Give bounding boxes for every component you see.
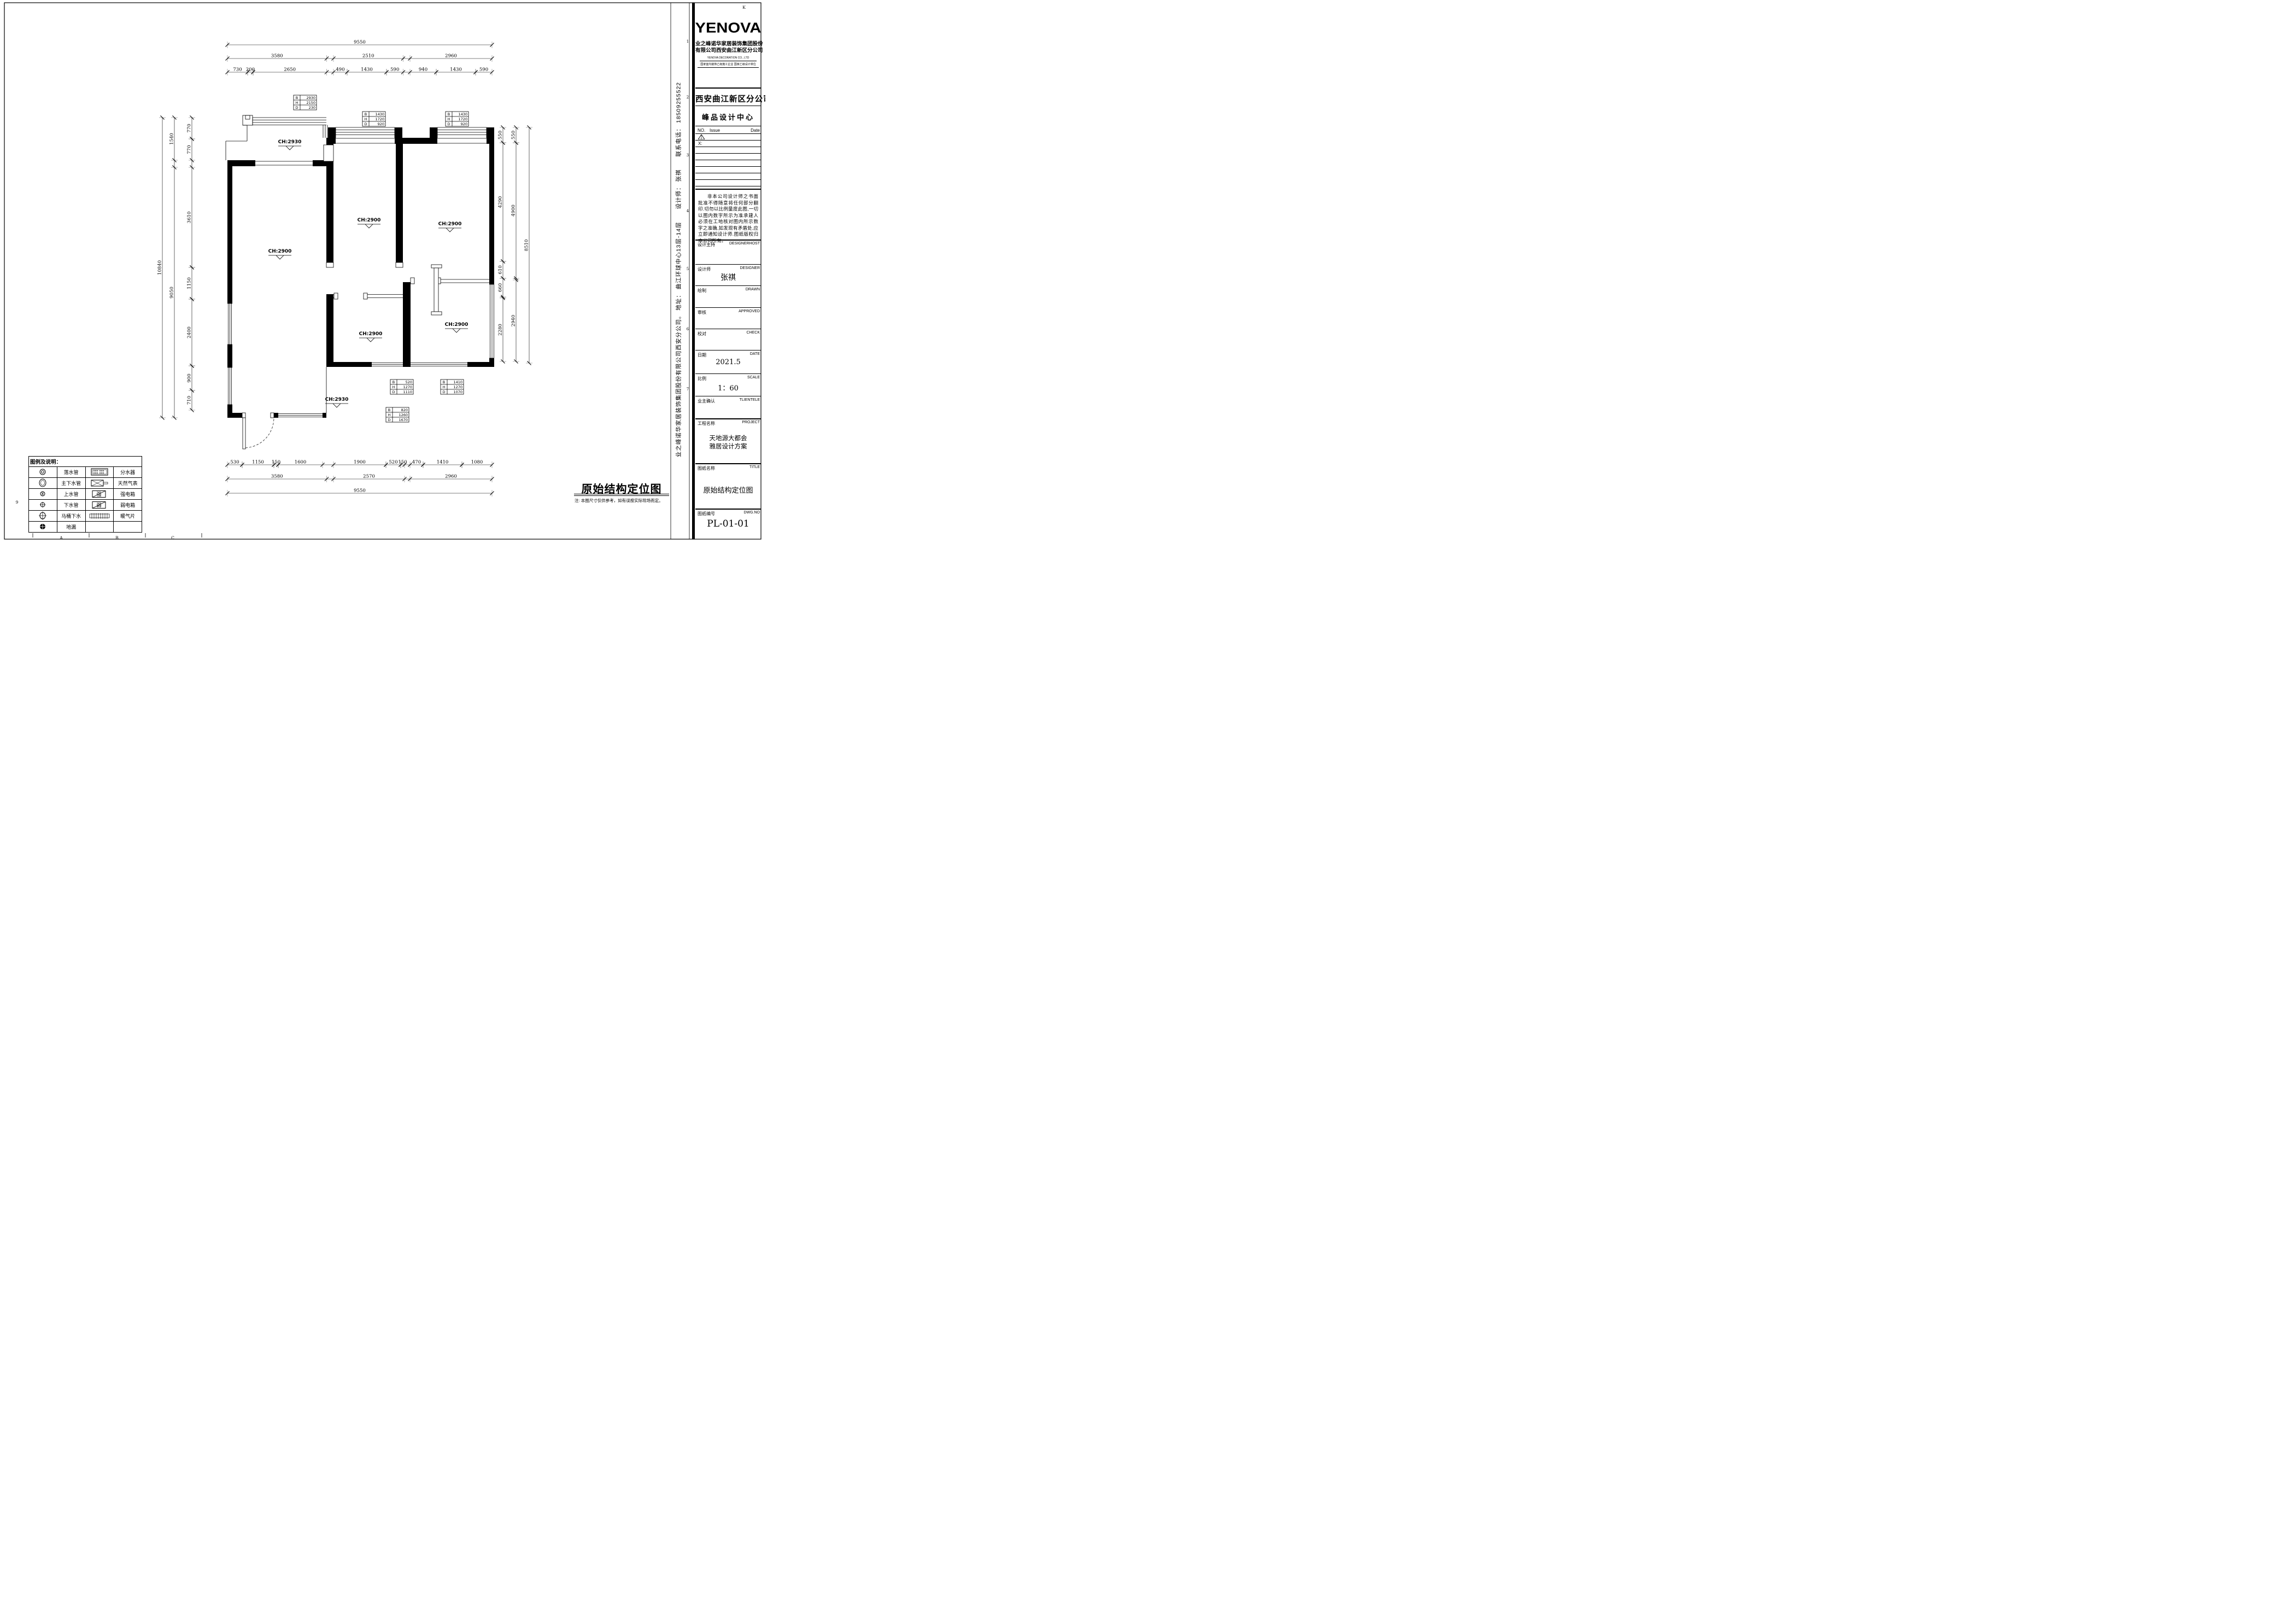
lower-balcony-window	[278, 414, 323, 417]
dimension-label: 610	[498, 265, 503, 274]
drawing-note: 注: 本图尺寸仅供参考，如有误按实际现场而定。	[575, 498, 672, 504]
row-label-cn: 绘制	[698, 288, 706, 294]
door-jamb	[271, 413, 274, 418]
dimension-chain: 358025102960	[226, 54, 494, 62]
svg-text:CH:2930: CH:2930	[325, 397, 349, 402]
gas-meter-icon	[90, 478, 109, 487]
ceiling-height-label: CH:2900	[358, 218, 381, 228]
dimension-label: 520	[389, 460, 397, 465]
title-block: YENOVA 业之峰诺华家居装饰集团股份 有限公司西安曲江新区分公司 YENOV…	[695, 5, 761, 535]
legend-label: 下水管	[57, 500, 85, 511]
svg-text:B: B	[393, 380, 395, 384]
column-outline	[324, 145, 333, 161]
svg-text:强: 强	[96, 492, 101, 497]
floor-drain-icon	[37, 523, 49, 530]
svg-text:B: B	[448, 112, 450, 116]
dimension-label: 2280	[498, 324, 503, 336]
dimension-label: 1080	[471, 460, 483, 465]
balcony-top-window	[253, 118, 327, 138]
dimension-label: 150	[398, 460, 407, 465]
company-name-en: YENOVA DECORATION CO., LTD	[695, 56, 761, 60]
door-leaf	[243, 418, 245, 449]
row-label-cn: 日期	[698, 352, 706, 358]
svg-text:D: D	[364, 122, 367, 126]
designer-name: 张祺	[695, 272, 761, 283]
weak-power-box-icon: 弱	[90, 500, 109, 509]
dimension-label: 1900	[354, 460, 366, 465]
opening-size-table: B1430H1720D920	[446, 112, 468, 126]
dimension-label: 590	[390, 67, 399, 73]
ceiling-height-label: CH:2900	[438, 221, 462, 232]
dimension-label: 1410	[437, 460, 449, 465]
dimension-label: 530	[230, 460, 239, 465]
branch-name: 西安曲江新区分公司	[695, 93, 761, 104]
dimension-chain: 53011501501600190052015047014101080	[226, 460, 494, 469]
dimension-label: 770	[187, 124, 192, 132]
legend-label: 暖气片	[114, 511, 142, 522]
row-label-en: DESIGNERHOST	[729, 242, 760, 246]
dimension-chain: 358025702960	[226, 474, 494, 483]
svg-text:1110: 1110	[403, 390, 412, 394]
dimension-chain: 15409050	[169, 116, 178, 420]
row-label-cn: 图纸名称	[698, 465, 715, 471]
door-jamb	[396, 262, 403, 267]
downpipe-icon	[37, 468, 49, 476]
corner-column	[243, 115, 253, 125]
dimension-label: 2650	[284, 67, 296, 73]
svg-text:H: H	[388, 413, 391, 417]
dimension-label: 1150	[187, 277, 192, 289]
main-drain-icon	[37, 478, 49, 487]
sheet-grid-label: A	[59, 535, 63, 540]
row-label-en: TLIENTELE	[740, 398, 760, 402]
company-name-line2: 有限公司西安曲江新区分公司	[695, 46, 761, 54]
dimension-label: 1430	[450, 67, 462, 73]
walls	[227, 127, 494, 418]
design-center: 峰品设计中心	[695, 112, 761, 122]
legend-label: 天然气表	[114, 478, 142, 489]
title-underline	[574, 495, 669, 496]
sheet-grid-label: B	[115, 535, 119, 540]
legend-label: 主下水管	[57, 478, 85, 489]
svg-text:1430: 1430	[458, 112, 467, 116]
toilet-drain-icon	[37, 511, 49, 520]
title-underline	[574, 494, 669, 494]
row-label-cn: 工程名称	[698, 420, 715, 427]
svg-text:弱: 弱	[96, 503, 101, 508]
balcony-door-sill	[255, 161, 313, 165]
legend: 图例及说明： 落水管 分水器 主下水管 天然气表 上水管 强 强电箱	[28, 456, 142, 533]
dimension-label: 550	[511, 131, 517, 139]
dimension-chain: 8510	[524, 126, 533, 365]
svg-text:B: B	[388, 408, 390, 412]
svg-text:D: D	[392, 390, 395, 394]
row-label-en: DESIGNER	[740, 266, 760, 270]
row-label-en: DRAWN	[746, 288, 760, 291]
row-label-en: TITLE	[749, 465, 760, 469]
svg-text:520: 520	[406, 380, 412, 384]
svg-text:H: H	[365, 117, 367, 121]
door-jamb	[326, 262, 333, 267]
grid-number: 3	[685, 153, 690, 157]
row-label-en: CHECK	[746, 331, 760, 335]
ceiling-height-label: CH:2930	[278, 139, 302, 150]
rev-date-header: Date	[751, 128, 760, 133]
svg-text:B: B	[296, 96, 298, 100]
dimension-label: 660	[498, 283, 503, 292]
grid-number: 4	[685, 209, 690, 213]
grid-number: 1	[685, 39, 690, 44]
dimension-label: 710	[187, 396, 192, 405]
svg-text:D: D	[442, 390, 445, 394]
opening-size-table: B2930H2150D230	[294, 95, 317, 110]
dimension-label: 9050	[169, 287, 175, 299]
legend-label: 马桶下水	[57, 511, 85, 522]
svg-text:1720: 1720	[458, 117, 467, 121]
opening-size-table: B520H1270D1110	[390, 379, 413, 394]
row-label-cn: 图纸编号	[698, 511, 715, 517]
dimension-label: 1430	[361, 67, 373, 73]
svg-text:2150: 2150	[306, 101, 315, 105]
svg-text:820: 820	[401, 408, 408, 412]
drain-pipe-icon	[37, 501, 49, 509]
grid-number: 5	[685, 267, 690, 271]
dimension-chain: 730200265049014305909401430590	[226, 67, 494, 76]
windows	[227, 118, 494, 417]
dimension-label: 2510	[362, 54, 374, 59]
supply-pipe-icon	[37, 490, 49, 498]
svg-text:D: D	[388, 418, 390, 422]
svg-text:H: H	[448, 117, 450, 121]
dimension-label: 2960	[445, 54, 457, 59]
door-jamb	[242, 413, 245, 418]
ceiling-height-label: CH:2930	[325, 397, 349, 407]
dimension-label: 1540	[169, 133, 175, 145]
dimension-label: 2960	[445, 474, 457, 480]
svg-text:920: 920	[378, 122, 384, 126]
dimension-label: 4900	[511, 205, 517, 217]
svg-text:H: H	[296, 101, 298, 105]
drawing-sheet: 9550358025102960730200265049014305909401…	[0, 0, 765, 541]
dimension-chain: 55049002940	[511, 126, 520, 364]
dimension-label: 900	[187, 373, 192, 382]
svg-text:1670: 1670	[399, 418, 408, 422]
dimension-label: 8510	[524, 239, 530, 252]
bay-window-1	[336, 127, 395, 143]
legend-label: 弱电箱	[114, 500, 142, 511]
svg-text:1270: 1270	[453, 385, 462, 389]
opening-size-table: B1410H1270D1070	[441, 379, 464, 394]
opening-size-table: B820H1260D1670	[386, 407, 409, 422]
bay-window-2	[437, 127, 487, 143]
row-label-en: PROJECT	[742, 420, 760, 424]
legend-label: 落水管	[57, 467, 85, 478]
dimension-chain: 770770361011502400900710	[187, 116, 196, 412]
row-label-en: APPROVED	[739, 309, 760, 313]
ceiling-height-label: CH:2900	[445, 322, 468, 332]
left-wall-window-1	[227, 303, 232, 344]
t-partition	[431, 265, 442, 315]
svg-text:CH:2900: CH:2900	[268, 249, 292, 254]
legend-label: 地漏	[57, 522, 85, 533]
sheet-title-value: 原始结构定位图	[695, 484, 761, 495]
dimension-chain: 9550	[226, 40, 494, 49]
grid-number: 7	[685, 387, 690, 392]
row-label-en: DWG.NO	[743, 511, 760, 515]
door-jamb	[364, 293, 367, 299]
dimension-label: 9550	[354, 40, 366, 45]
revision-triangle-icon	[698, 135, 705, 139]
radiator-icon	[89, 512, 110, 519]
project-name-line1: 天地源大都会	[695, 434, 761, 442]
svg-text:1410: 1410	[453, 380, 462, 384]
door-jamb	[334, 293, 338, 299]
svg-text:B: B	[365, 112, 367, 116]
dimension-label: 1150	[252, 460, 264, 465]
dimension-label: 550	[498, 131, 503, 139]
dimension-label: 940	[419, 67, 427, 73]
svg-text:230: 230	[309, 106, 315, 110]
legend-label: 分水器	[114, 467, 142, 478]
company-cert: 国家室内装饰乙级施工企业 国家乙级设计单位	[695, 62, 761, 66]
strong-power-box-icon: 强	[90, 489, 109, 498]
dimension-label: 2400	[187, 326, 192, 338]
svg-text:B: B	[443, 380, 445, 384]
row-label-cn: 比例	[698, 376, 706, 382]
svg-text:920: 920	[461, 122, 467, 126]
right-room-bottom-window	[411, 363, 467, 366]
opening-size-table: B1430H1720D920	[362, 112, 385, 126]
company-logo: YENOVA	[693, 20, 764, 36]
sheet-grid-label: 9	[16, 500, 19, 505]
row-label-en: SCALE	[747, 376, 760, 379]
svg-text:H: H	[393, 385, 395, 389]
svg-text:1720: 1720	[375, 117, 384, 121]
dimension-label: 3580	[271, 54, 283, 59]
date-value: 2021.5	[695, 358, 761, 366]
legend-label: 强电箱	[114, 489, 142, 500]
dimension-label: 3580	[271, 474, 283, 480]
dimension-label: 730	[233, 67, 242, 73]
dimension-label: 1600	[295, 460, 307, 465]
dimension-label: 4290	[498, 196, 503, 208]
dimension-label: 470	[412, 460, 421, 465]
row-label-cn: 设计主持	[698, 242, 715, 248]
svg-text:CH:2930: CH:2930	[278, 139, 302, 145]
ceiling-height-label: CH:2900	[359, 331, 383, 342]
svg-text:H: H	[443, 385, 446, 389]
dimension-label: 2940	[511, 315, 517, 327]
svg-text:1260: 1260	[399, 413, 408, 417]
grid-number: 6	[685, 327, 690, 331]
svg-text:1430: 1430	[375, 112, 384, 116]
door-jamb	[411, 278, 414, 284]
project-name-line2: 雅居设计方案	[695, 442, 761, 451]
middle-room-bottom-window	[372, 363, 403, 366]
row-label-cn: 业主确认	[698, 398, 715, 404]
grid-number: 2	[685, 95, 690, 100]
entry-door	[242, 413, 274, 449]
left-wall-window-2	[227, 367, 232, 405]
svg-text:1070: 1070	[453, 390, 462, 394]
svg-text:2930: 2930	[306, 96, 315, 100]
svg-text:1270: 1270	[403, 385, 412, 389]
drawing-number: PL-01-01	[695, 518, 761, 529]
dimension-label: 590	[479, 67, 488, 73]
row-label-cn: 校对	[698, 331, 706, 337]
manifold-icon	[90, 468, 109, 476]
row-label-cn: 审核	[698, 309, 706, 316]
dimension-chain: 9550	[226, 488, 494, 497]
svg-text:D: D	[295, 106, 298, 110]
door-swing-arc	[245, 418, 274, 448]
sheet-grid-label: C	[171, 535, 174, 540]
dimension-label: 490	[336, 67, 344, 73]
svg-text:D: D	[447, 122, 450, 126]
svg-text:CH:2900: CH:2900	[359, 331, 383, 337]
dimension-chain: 55042906106602280	[498, 126, 507, 364]
legend-title: 图例及说明：	[29, 457, 142, 467]
dimension-label: 3610	[187, 212, 192, 224]
right-wall-window	[489, 284, 494, 358]
dimension-label: 770	[187, 145, 192, 154]
rev-issue-header: Issue	[710, 128, 720, 133]
copyright-disclaimer: 非本公司设计师之书面批准不得随意将任何部分翻印.切勿以比例量度此图,一切以图内数…	[698, 194, 758, 244]
scale-value: 1：60	[695, 382, 761, 393]
legend-label: 上水管	[57, 489, 85, 500]
ceiling-height-label: CH:2900	[268, 249, 292, 259]
svg-text:CH:2900: CH:2900	[445, 322, 468, 328]
dimension-label: 9550	[354, 488, 366, 494]
svg-text:CH:2900: CH:2900	[438, 221, 462, 227]
revision-x-mark: X:	[698, 141, 702, 146]
side-info-text: 业之峰诺华家居装饰集团股份有限公司西安分公司。 地址： 曲江环球中心13层-14…	[675, 82, 683, 457]
balcony-outline	[226, 115, 333, 413]
dimension-chain: 10840	[157, 116, 166, 420]
svg-text:CH:2900: CH:2900	[358, 218, 381, 223]
row-label-en: DATE	[750, 352, 760, 356]
dimension-label: 2570	[363, 474, 375, 480]
dimension-label: 10840	[157, 260, 163, 275]
rev-no-header: NO.	[698, 128, 705, 133]
